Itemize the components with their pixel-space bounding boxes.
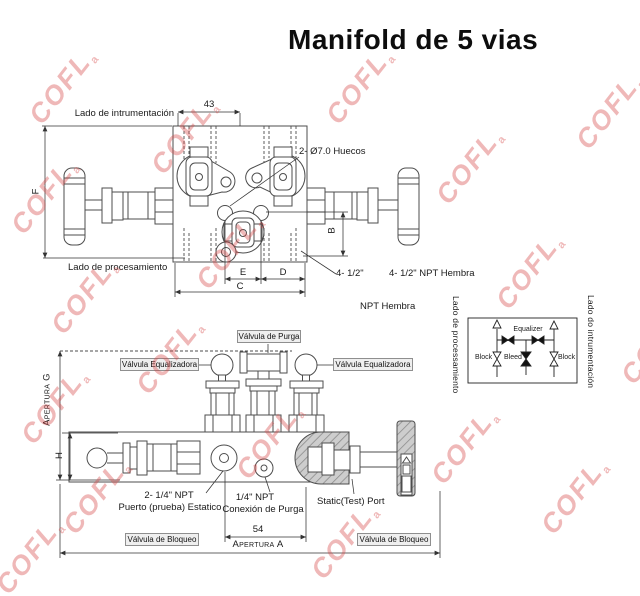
holes-label: 2- Ø7.0 Huecos [299,146,366,157]
outlet-fitting [308,443,397,475]
purge-valve-stack [240,352,287,432]
valve-left [64,168,173,245]
dim-c: C [230,281,250,292]
equalizer-valve-left-label: Válvula Equalizadora [120,358,199,371]
end-plate [397,421,415,496]
equalizer-label: Equalizer [505,326,551,334]
purge-conn-label-line2: Conexión de Purga [215,504,311,515]
dim-e: E [233,267,253,278]
block-right-label: Block [558,354,575,362]
static-test-port-label: Static(Test) Port [317,496,385,507]
purge-conn-label-line1: 1/4" NPT [225,492,285,503]
ports-label-short: 4- 1/2" [336,268,364,279]
instrument-side-label: Lado de intrumentación [64,108,174,119]
equalizer-valve-right-stack [289,354,324,432]
equalizer-valve-right-label: Válvula Equalizadora [333,358,413,371]
schematic-instrument-side-label: Lado do intrumentación [585,295,596,410]
drawing-page: Manifold de 5 vias Lado de intrumentació… [0,0,640,596]
valve-right [307,168,419,245]
equalizer-valve-left-stack [205,354,240,432]
static-port-label-line2: Puerto (prueba) Estatico [118,502,222,513]
dim-54: 54 [248,524,268,535]
process-side-label: Lado de procesamiento [68,262,167,273]
static-port-label-line1: 2- 1/4" NPT [134,490,204,501]
block-left-label: Block [475,354,492,362]
dim-b: B [327,227,338,233]
block-valve-right-label: Válvula de Bloqueo [357,533,431,546]
page-title: Manifold de 5 vias [288,24,538,56]
block-valve-left-label: Válvula de Bloqueo [125,533,199,546]
dim-apertura-a: Apertura A [218,539,298,550]
bleed-valve-symbol [521,352,531,366]
purge-valve-label: Válvula de Purga [237,330,301,343]
bleed-label: Bleed [504,354,522,362]
dim-apertura-g: Apertura G [42,369,53,431]
ports-label-full: 4- 1/2" NPT Hembra [389,268,475,279]
ports-label-thread: NPT Hembra [360,301,415,312]
dim-f: F [30,189,41,195]
schematic-process-side-label: Lado de processamiento [450,296,461,408]
dim-43: 43 [199,99,219,110]
dim-h: H [54,452,65,459]
dim-d: D [273,267,293,278]
